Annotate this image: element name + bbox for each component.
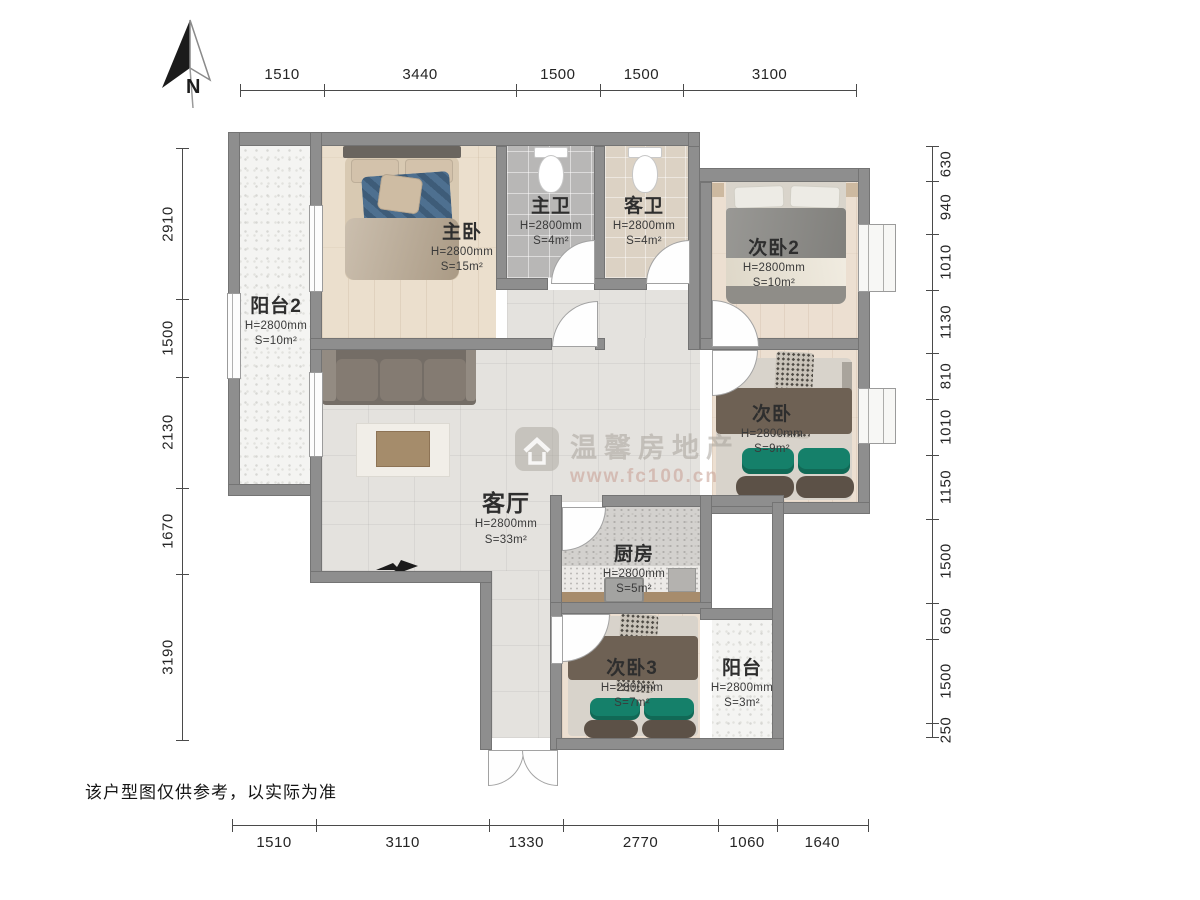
- wall-bedroom2-left: [700, 182, 712, 350]
- dimension-line-right-tick: [926, 519, 939, 520]
- dimension-line-left-tick: [176, 377, 189, 378]
- wall-kitchen-top: [602, 495, 784, 507]
- sofa: [322, 341, 476, 405]
- kitchen-stove: [668, 568, 696, 592]
- entry-door-right: [522, 750, 558, 786]
- dimension-line-right-label: 1130: [938, 305, 955, 339]
- dimension-line-bottom-tick: [489, 819, 490, 832]
- dimension-line-left-tick: [176, 574, 189, 575]
- dimension-line-bottom-label: 2770: [623, 834, 658, 851]
- dimension-line-right-label: 1150: [938, 470, 955, 504]
- dimension-line-top-tick: [600, 84, 601, 97]
- entry-door-left: [488, 750, 524, 786]
- dimension-line-top-label: 3100: [752, 66, 787, 83]
- window-balcony2-outer: [227, 293, 241, 379]
- wall-kitchen-left: [550, 495, 562, 615]
- dimension-line-right-tick: [926, 234, 939, 235]
- dimension-line-bottom-tick: [777, 819, 778, 832]
- dimension-line-right-tick: [926, 639, 939, 640]
- dimension-line-right-label: 1010: [938, 244, 955, 279]
- dimension-line-right-tick: [926, 290, 939, 291]
- dimension-line-right-label: 650: [938, 608, 955, 635]
- dimension-line-left-tick: [176, 488, 189, 489]
- wall-master-bottom: [310, 338, 552, 350]
- disclaimer-text: 该户型图仅供参考，以实际为准: [85, 778, 337, 803]
- coffee-table: [356, 423, 448, 475]
- dimension-line-bottom-label: 1640: [805, 834, 840, 851]
- dimension-line-top-label: 1500: [540, 66, 575, 83]
- bed-master: [343, 146, 461, 282]
- dimension-line-top-label: 1510: [264, 66, 299, 83]
- dimension-line-right-tick: [926, 603, 939, 604]
- dimension-line-top-tick: [516, 84, 517, 97]
- dimension-line-right-label: 630: [938, 150, 955, 177]
- dimension-line-bottom-tick: [718, 819, 719, 832]
- dimension-line-right-label: 1500: [938, 663, 955, 698]
- dimension-line-bottom-label: 1330: [509, 834, 544, 851]
- kitchen-sink: [604, 577, 644, 603]
- wall-entry-left: [480, 571, 492, 750]
- lightwell-void: [712, 507, 772, 608]
- dimension-line-right-label: 1010: [938, 409, 955, 444]
- dimension-line-top-tick: [324, 84, 325, 97]
- living-floor-lower: [322, 502, 550, 571]
- dimension-line-left-label: 2130: [160, 415, 177, 450]
- wall-living-bottom-left: [310, 571, 492, 583]
- dimension-line-left-tick: [176, 740, 189, 741]
- wall-right-lower: [772, 502, 784, 750]
- window-balcony2-living: [309, 372, 323, 457]
- dimension-line-left: [182, 148, 183, 740]
- north-label: N: [186, 76, 200, 99]
- dimension-line-bottom-label: 1060: [729, 834, 764, 851]
- dimension-line-bottom-label: 3110: [386, 834, 420, 851]
- dimension-line-right-tick: [926, 353, 939, 354]
- door-leaf-bedroom3: [551, 616, 563, 664]
- dimension-line-right-label: 810: [938, 363, 955, 390]
- wall-baths-bottom-a: [496, 278, 548, 290]
- dimension-line-bottom-tick: [868, 819, 869, 832]
- entry-corridor-floor: [492, 571, 550, 738]
- dimension-line-right-label: 940: [938, 194, 955, 221]
- wall-kitchen-right: [700, 495, 712, 615]
- dimension-line-right-tick: [926, 399, 939, 400]
- dimension-line-left-label: 1500: [160, 320, 177, 355]
- balcony-floor: [712, 620, 772, 738]
- dimension-line-right-label: 250: [938, 717, 955, 744]
- dimension-line-bottom-tick: [232, 819, 233, 832]
- dimension-line-left-tick: [176, 299, 189, 300]
- dimension-line-left-label: 1670: [160, 513, 177, 548]
- floor-plan: N: [0, 0, 1200, 900]
- dimension-line-right-label: 1500: [938, 543, 955, 578]
- nightstand-left: [712, 183, 724, 197]
- dimension-line-left-tick: [176, 148, 189, 149]
- dimension-line-left-label: 3190: [160, 640, 177, 675]
- wall-bath-divider: [594, 146, 605, 290]
- dimension-line-top: [240, 90, 856, 91]
- dimension-line-top-tick: [856, 84, 857, 97]
- dimension-line-top-label: 3440: [402, 66, 437, 83]
- dimension-line-top-tick: [240, 84, 241, 97]
- dimension-line-top-tick: [683, 84, 684, 97]
- bay-window-bedroom2: [858, 224, 896, 292]
- dimension-line-bottom-label: 1510: [256, 834, 291, 851]
- wall-bedroom3-top: [550, 602, 712, 614]
- dimension-line-bottom-tick: [316, 819, 317, 832]
- wall-balcony2-divider: [310, 132, 322, 583]
- dimension-line-top-label: 1500: [624, 66, 659, 83]
- dimension-line-bottom-tick: [563, 819, 564, 832]
- wall-bottom-b: [556, 738, 784, 750]
- kitchen-counter: [562, 566, 700, 602]
- dimension-line-right-tick: [926, 181, 939, 182]
- balcony2-floor: [240, 146, 310, 484]
- wall-top-right: [694, 168, 870, 182]
- dimension-line-bottom: [232, 825, 868, 826]
- north-arrow-icon: [150, 16, 230, 116]
- wall-masterbath-left: [496, 146, 507, 290]
- bay-window-bedroom: [858, 388, 896, 444]
- bed-bedroom2: [724, 182, 848, 304]
- wall-right-outer: [858, 168, 870, 514]
- dimension-line-left-label: 2910: [160, 206, 177, 241]
- wall-balcony2-bottom: [228, 484, 322, 496]
- wall-baths-bottom-b: [594, 278, 647, 290]
- dimension-line-right-tick: [926, 146, 939, 147]
- window-balcony2-master: [309, 205, 323, 292]
- dimension-line-right-tick: [926, 455, 939, 456]
- wall-top: [228, 132, 700, 146]
